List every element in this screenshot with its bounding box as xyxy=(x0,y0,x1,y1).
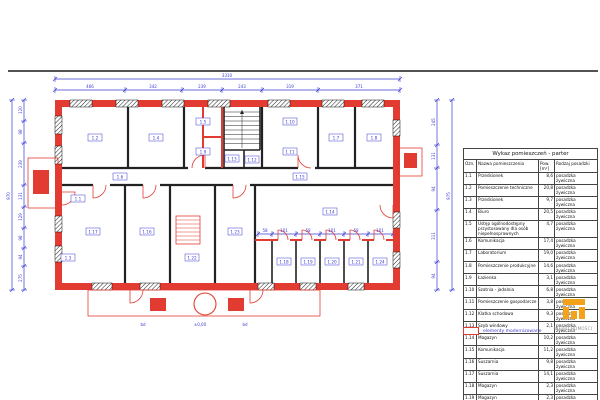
svg-text:1.11: 1.11 xyxy=(285,150,295,155)
table-cell: 20,8 xyxy=(539,184,555,196)
room-tag: 1.9 xyxy=(196,148,210,155)
table-cell: 9,8 xyxy=(539,358,555,370)
dimension-label: 245 xyxy=(431,118,436,126)
table-cell: 14,1 xyxy=(539,370,555,382)
room-tag: 1.13 xyxy=(225,155,239,162)
svg-text:1.17: 1.17 xyxy=(88,230,98,235)
table-row: 1.2Pomieszczenie techniczne20,8posadzka … xyxy=(464,184,598,196)
room-tag: 1.18 xyxy=(277,258,291,265)
table-cell: Laboratorium xyxy=(477,249,539,261)
dimension-label: 239 xyxy=(18,160,23,168)
svg-text:1.1: 1.1 xyxy=(75,197,82,202)
table-cell: Magazyn xyxy=(477,334,539,346)
room-tag: 1.12 xyxy=(245,156,259,163)
company-logo: NIERUCHOMOŚCI xyxy=(548,297,598,331)
table-cell: posadzka żywiczna xyxy=(555,220,598,237)
table-cell: 17,4 xyxy=(539,237,555,249)
room-tag: 1.11 xyxy=(283,148,297,155)
dimension-label: 131 xyxy=(431,152,436,160)
table-row: 1.1Przedsionek8,6posadzka żywiczna xyxy=(464,172,598,184)
table-cell: 3,1 xyxy=(539,274,555,286)
table-row: 1.15Komunikacja11,2posadzka żywiczna xyxy=(464,346,598,358)
svg-text:1.14: 1.14 xyxy=(325,210,335,215)
svg-text:1.7: 1.7 xyxy=(333,136,340,141)
dimension-label: 120 xyxy=(18,106,23,114)
table-cell: 1.19 xyxy=(464,394,477,400)
room-tag: 1.5 xyxy=(196,118,210,125)
table-cell: 1.16 xyxy=(464,358,477,370)
table-cell: Przedsionek xyxy=(477,196,539,208)
table-cell: posadzka żywiczna xyxy=(555,346,598,358)
table-cell: 1.17 xyxy=(464,370,477,382)
dimension-label: 94 xyxy=(18,254,23,260)
dimension-label: bd xyxy=(242,322,248,327)
dimension-label: 101 xyxy=(328,228,336,233)
col-header-floor: Rodzaj posadzki xyxy=(555,160,598,172)
table-cell: 2,3 xyxy=(539,394,555,400)
svg-text:1.6: 1.6 xyxy=(117,175,124,180)
table-cell: posadzka żywiczna xyxy=(555,172,598,184)
table-cell: Łazienka xyxy=(477,274,539,286)
table-cell: 19,0 xyxy=(539,249,555,261)
interior-walls xyxy=(62,107,393,283)
table-cell: 1.11 xyxy=(464,298,477,310)
table-cell: Suszarnia xyxy=(477,370,539,382)
table-cell: posadzka żywiczna xyxy=(555,370,598,382)
table-cell: 1.18 xyxy=(464,382,477,394)
dimension-label: 58 xyxy=(353,228,359,233)
tank-circle xyxy=(194,293,216,315)
svg-text:1.21: 1.21 xyxy=(351,260,361,265)
table-cell: 8,6 xyxy=(539,172,555,184)
dimension-label: ±0,00 xyxy=(194,322,207,327)
table-cell: 10,2 xyxy=(539,334,555,346)
dimension-label: 58 xyxy=(305,228,311,233)
svg-text:1.20: 1.20 xyxy=(327,260,337,265)
dimension-label: 319 xyxy=(286,84,294,89)
dimension-label: 101 xyxy=(376,228,384,233)
dimension-label: 466 xyxy=(86,84,94,89)
room-schedule-table: Wykaz pomieszczeń - parter Ozn. Nazwa po… xyxy=(463,148,597,400)
col-header-ozn: Ozn. xyxy=(464,160,477,172)
table-cell: 1.10 xyxy=(464,286,477,298)
table-cell: 4,7 xyxy=(539,220,555,237)
table-cell: posadzka żywiczna xyxy=(555,358,598,370)
table-cell: Pomieszczenie techniczne xyxy=(477,184,539,196)
table-cell: posadzka żywiczna xyxy=(555,237,598,249)
table-cell: 1.2 xyxy=(464,184,477,196)
table-cell: posadzka żywiczna xyxy=(555,334,598,346)
dimension-label: 98 xyxy=(18,235,23,241)
table-cell: posadzka żywiczna xyxy=(555,274,598,286)
room-tag: 1.19 xyxy=(301,258,315,265)
room-tag: 1.15 xyxy=(293,173,307,180)
svg-text:1.2: 1.2 xyxy=(92,136,99,141)
dimension-label: 131 xyxy=(18,192,23,200)
table-cell: 14,6 xyxy=(539,262,555,274)
table-header-row: Ozn. Nazwa pomieszczenia Pow. [m²] Rodza… xyxy=(464,160,598,172)
dimension-label: 243 xyxy=(238,84,246,89)
table-title: Wykaz pomieszczeń - parter xyxy=(464,149,598,160)
room-tag: 1.21 xyxy=(349,258,363,265)
svg-text:1.16: 1.16 xyxy=(142,230,152,235)
dimension-label: 129 xyxy=(18,213,23,221)
room-tag: 1.8 xyxy=(367,134,381,141)
table-cell: Ustęp ogólnodostępny przystosowany dla o… xyxy=(477,220,539,237)
room-table-body: 1.1Przedsionek8,6posadzka żywiczna1.2Pom… xyxy=(464,172,598,400)
table-cell: 11,2 xyxy=(539,346,555,358)
table-cell: Przedsionek xyxy=(477,172,539,184)
table-cell: 1.8 xyxy=(464,262,477,274)
table-row: 1.18Magazyn2,3posadzka żywiczna xyxy=(464,382,598,394)
table-cell: Pomieszczenie produkcyjne xyxy=(477,262,539,274)
svg-text:1.19: 1.19 xyxy=(303,260,313,265)
svg-text:1.15: 1.15 xyxy=(295,175,305,180)
table-cell: posadzka żywiczna xyxy=(555,382,598,394)
table-row: 1.5Ustęp ogólnodostępny przystosowany dl… xyxy=(464,220,598,237)
table-row: 1.10Szatnia - jadalnia6,8posadzka żywicz… xyxy=(464,286,598,298)
logo-text: NIERUCHOMOŚCI xyxy=(548,326,598,331)
svg-text:1.22: 1.22 xyxy=(187,256,197,261)
svg-text:1.23: 1.23 xyxy=(230,230,240,235)
table-cell: 1.15 xyxy=(464,346,477,358)
room-tag: 1.16 xyxy=(140,228,154,235)
table-row: 1.6Komunikacja17,4posadzka żywiczna xyxy=(464,237,598,249)
table-cell: posadzka żywiczna xyxy=(555,249,598,261)
modernized-swatch-icon xyxy=(463,327,479,335)
svg-text:1.13: 1.13 xyxy=(227,157,237,162)
table-row: 1.4Biuro20,5posadzka żywiczna xyxy=(464,208,598,220)
table-cell: 1.1 xyxy=(464,172,477,184)
table-cell: Suszarnia xyxy=(477,358,539,370)
table-cell: 1.9 xyxy=(464,274,477,286)
svg-text:1.24: 1.24 xyxy=(375,260,385,265)
table-cell: 1.14 xyxy=(464,334,477,346)
dimension-label: 371 xyxy=(355,84,363,89)
room-tag: 1.22 xyxy=(185,254,199,261)
drawing-sheet: 3310466342239243319371970120982391311299… xyxy=(0,0,600,400)
room-tag: 1.4 xyxy=(149,134,163,141)
table-cell: 1.5 xyxy=(464,220,477,237)
table-cell: Komunikacja xyxy=(477,237,539,249)
dimension-label: bd xyxy=(140,322,146,327)
table-cell: 1.6 xyxy=(464,237,477,249)
table-row: 1.19Magazyn2,3posadzka żywiczna xyxy=(464,394,598,400)
table-cell: 1.4 xyxy=(464,208,477,220)
table-cell: Magazyn xyxy=(477,382,539,394)
svg-text:1.18: 1.18 xyxy=(279,260,289,265)
room-tag: 1.6 xyxy=(113,173,127,180)
table-cell: posadzka żywiczna xyxy=(555,286,598,298)
exterior-walls xyxy=(55,100,400,290)
table-cell: Komunikacja xyxy=(477,346,539,358)
table-cell: posadzka żywiczna xyxy=(555,394,598,400)
table-cell: Pomieszczenie gospodarcze xyxy=(477,298,539,310)
table-cell: posadzka żywiczna xyxy=(555,184,598,196)
col-header-name: Nazwa pomieszczenia xyxy=(477,160,539,172)
room-tag: 1.20 xyxy=(325,258,339,265)
room-tag: 1.24 xyxy=(373,258,387,265)
dimension-label: 98 xyxy=(18,129,23,135)
dimension-label: 970 xyxy=(6,192,11,200)
table-cell: posadzka żywiczna xyxy=(555,262,598,274)
svg-text:1.10: 1.10 xyxy=(285,120,295,125)
table-row: 1.7Laboratorium19,0posadzka żywiczna xyxy=(464,249,598,261)
legend-label: elementy modernizowane xyxy=(483,329,541,334)
table-cell: Magazyn xyxy=(477,394,539,400)
table-row: 1.8Pomieszczenie produkcyjne14,6posadzka… xyxy=(464,262,598,274)
dimension-label: 239 xyxy=(198,84,206,89)
table-cell: 6,8 xyxy=(539,286,555,298)
window-openings xyxy=(55,100,400,290)
table-row: 1.16Suszarnia9,8posadzka żywiczna xyxy=(464,358,598,370)
room-tag: 1.10 xyxy=(283,118,297,125)
room-tag: 1.2 xyxy=(88,134,102,141)
dimension-label: 342 xyxy=(149,84,157,89)
table-cell: Klatka schodowa xyxy=(477,310,539,322)
dimension-label: 3310 xyxy=(222,73,233,78)
staircase xyxy=(224,110,260,148)
table-row: 1.17Suszarnia14,1posadzka żywiczna xyxy=(464,370,598,382)
table-cell: 1.12 xyxy=(464,310,477,322)
table-cell: 20,5 xyxy=(539,208,555,220)
svg-text:1.4: 1.4 xyxy=(153,136,160,141)
svg-text:1.8: 1.8 xyxy=(371,136,378,141)
new-stair xyxy=(176,216,200,244)
room-tag: 1.23 xyxy=(228,228,242,235)
col-header-area: Pow. [m²] xyxy=(539,160,555,172)
table-cell: 9,7 xyxy=(539,196,555,208)
svg-text:1.5: 1.5 xyxy=(200,120,207,125)
room-tag: 1.1 xyxy=(71,195,85,202)
table-row: 1.3Przedsionek9,7posadzka żywiczna xyxy=(464,196,598,208)
legend: elementy modernizowane xyxy=(463,327,541,335)
room-tag: 1.3 xyxy=(61,254,75,261)
svg-text:1.9: 1.9 xyxy=(200,150,207,155)
table-cell: posadzka żywiczna xyxy=(555,208,598,220)
dimension-label: 275 xyxy=(18,274,23,282)
svg-text:1.3: 1.3 xyxy=(65,256,72,261)
dimension-label: 58 xyxy=(262,228,268,233)
table-cell: posadzka żywiczna xyxy=(555,196,598,208)
table-row: 1.14Magazyn10,2posadzka żywiczna xyxy=(464,334,598,346)
dimension-label: 94 xyxy=(431,273,436,279)
svg-text:1.12: 1.12 xyxy=(247,158,257,163)
dimension-label: 94 xyxy=(431,186,436,192)
room-tag: 1.7 xyxy=(329,134,343,141)
room-tag: 1.14 xyxy=(323,208,337,215)
logo-house-icon xyxy=(553,297,593,321)
dimension-label: 101 xyxy=(280,228,288,233)
table-cell: Szatnia - jadalnia xyxy=(477,286,539,298)
table-cell: Biuro xyxy=(477,208,539,220)
table-cell: 2,3 xyxy=(539,382,555,394)
table-cell: 1.3 xyxy=(464,196,477,208)
table-row: 1.9Łazienka3,1posadzka żywiczna xyxy=(464,274,598,286)
table-cell: 1.7 xyxy=(464,249,477,261)
dimension-label: 311 xyxy=(431,232,436,240)
room-tag: 1.17 xyxy=(86,228,100,235)
dimension-label: 975 xyxy=(446,192,451,200)
